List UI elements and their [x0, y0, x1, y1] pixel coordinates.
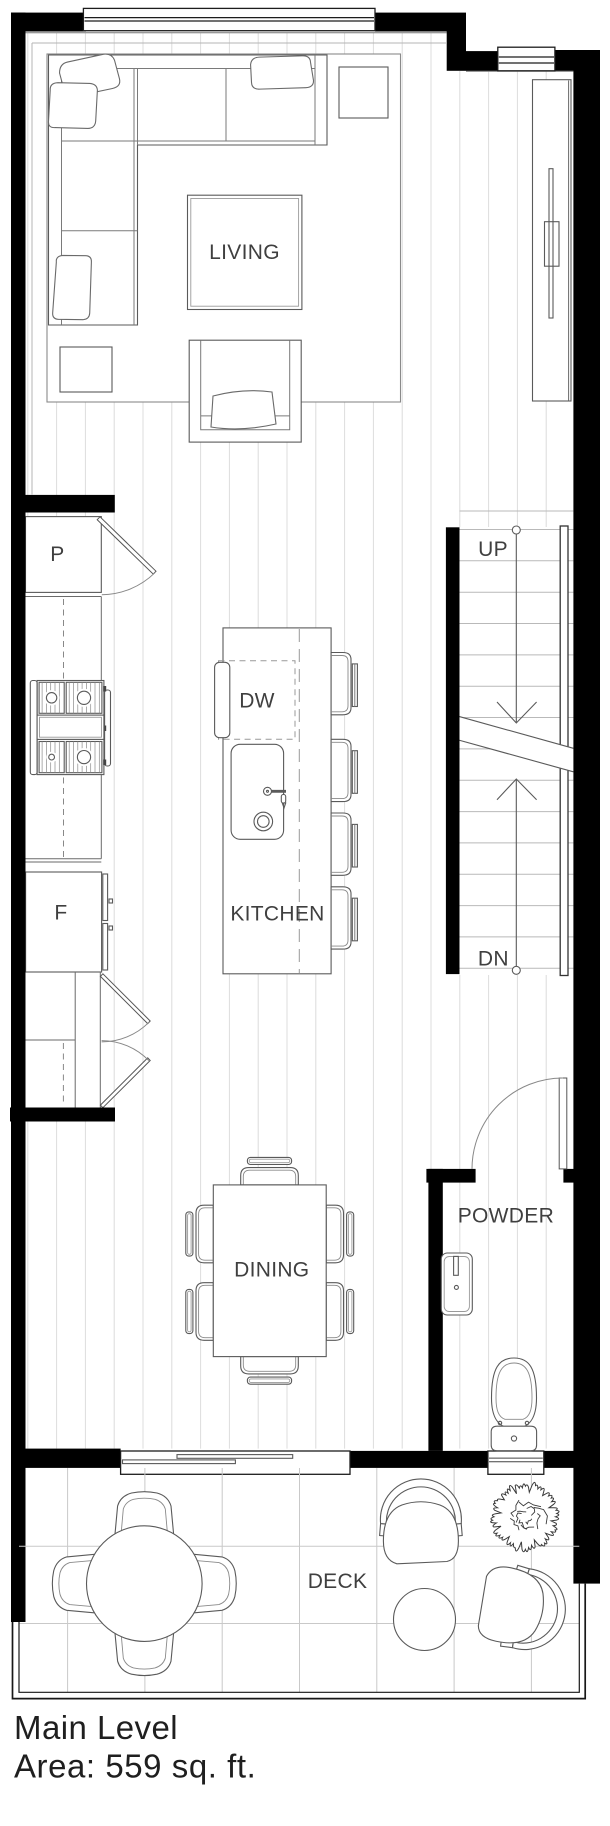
- svg-text:POWDER: POWDER: [458, 1205, 554, 1228]
- svg-text:KITCHEN: KITCHEN: [230, 902, 324, 925]
- svg-text:F: F: [54, 902, 67, 925]
- svg-text:Area: 559 sq. ft.: Area: 559 sq. ft.: [14, 1748, 256, 1785]
- svg-text:UP: UP: [478, 538, 508, 561]
- svg-text:Main Level: Main Level: [14, 1709, 178, 1746]
- svg-text:DW: DW: [239, 690, 275, 713]
- svg-text:P: P: [50, 543, 64, 566]
- svg-text:LIVING: LIVING: [209, 241, 280, 264]
- svg-text:DINING: DINING: [234, 1259, 309, 1282]
- svg-text:DN: DN: [478, 947, 509, 970]
- svg-text:DECK: DECK: [308, 1570, 368, 1593]
